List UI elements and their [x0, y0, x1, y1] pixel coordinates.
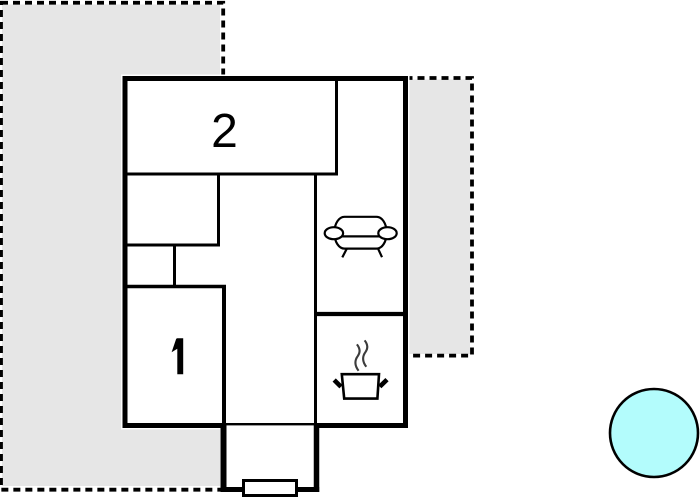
svg-text:2: 2 [211, 105, 238, 158]
